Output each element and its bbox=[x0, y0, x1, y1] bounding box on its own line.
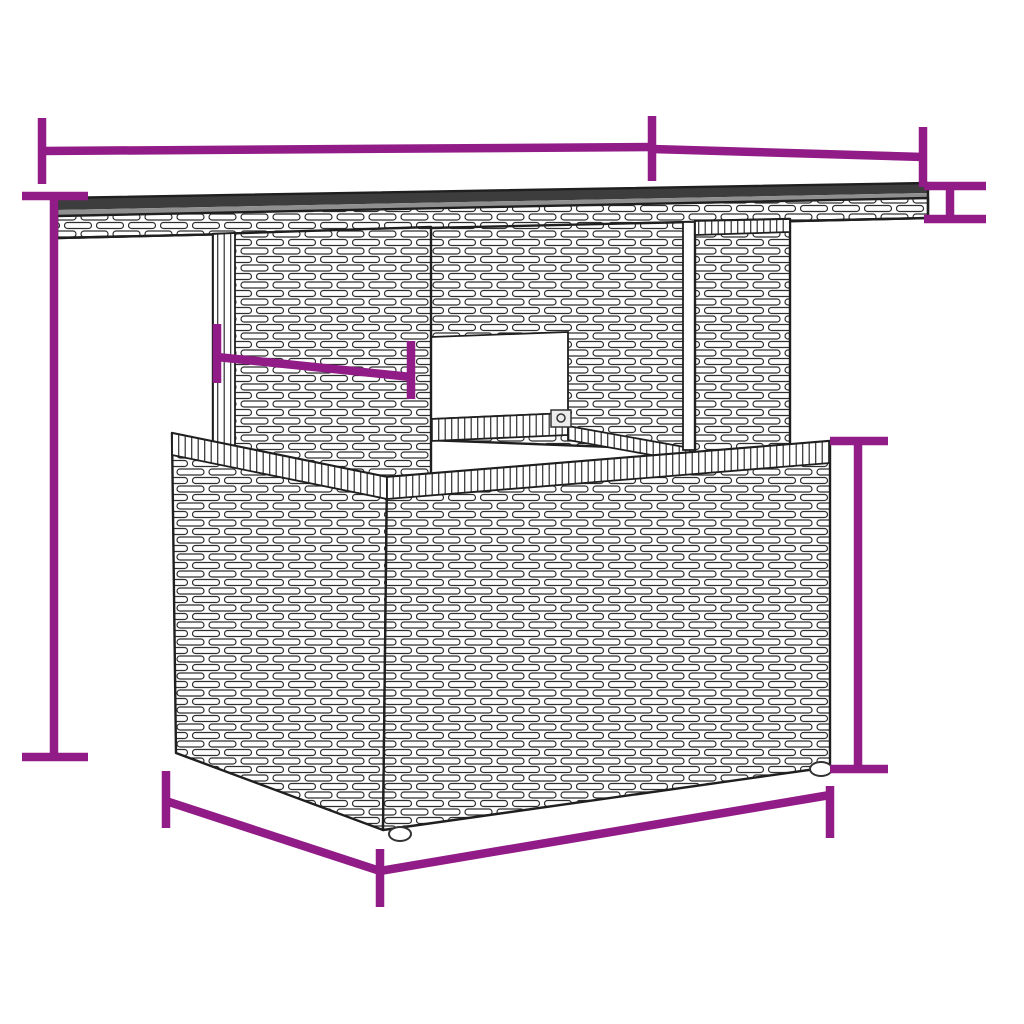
product-dimension-image: 100 cm( 39.3″ ) 55 cm( 21.7″ ) 4 cm( 1.6… bbox=[0, 0, 1024, 1024]
dim-label-base-height: 42 cm( 16.5″ ) bbox=[881, 498, 928, 731]
dim-tabletop-thickness: 4 cm( 1.6″ ) bbox=[924, 128, 1022, 320]
dim-label-tabletop-depth: 55 cm( 21.7″ ) bbox=[682, 80, 908, 139]
dim-tabletop-width: 100 cm( 39.3″ ) bbox=[42, 76, 652, 184]
pedestal-window-sill-roll bbox=[431, 413, 568, 441]
pedestal-right-panel bbox=[695, 219, 790, 455]
base-foot-left bbox=[389, 827, 411, 841]
dim-label-tabletop-width: 100 cm( 39.3″ ) bbox=[254, 76, 513, 132]
pedestal-right-panel-top-roll bbox=[695, 219, 790, 235]
dim-label-tabletop-thickness: 4 cm( 1.6″ ) bbox=[975, 128, 1022, 320]
corner-bracket bbox=[551, 410, 571, 427]
pedestal-window bbox=[431, 332, 568, 419]
dim-tabletop-depth: 55 cm( 21.7″ ) bbox=[652, 80, 923, 187]
base-front-face bbox=[383, 441, 830, 830]
dim-label-base-depth: 55 cm( 21.7″ ) bbox=[145, 849, 374, 963]
dim-total-height: 73 cm( 28.7″ ) bbox=[11, 196, 89, 757]
dim-line bbox=[42, 147, 652, 151]
dim-base-height: 42 cm( 16.5″ ) bbox=[830, 441, 928, 769]
base-box bbox=[172, 433, 832, 841]
table-illustration bbox=[57, 183, 928, 841]
dim-label-base-width: 68 cm( 26.7″ ) bbox=[513, 846, 743, 931]
pedestal-gap-strip bbox=[683, 222, 695, 450]
base-foot-right bbox=[810, 762, 832, 776]
dim-line bbox=[652, 149, 923, 157]
table-line-drawing: 100 cm( 39.3″ ) 55 cm( 21.7″ ) 4 cm( 1.6… bbox=[0, 0, 1024, 1024]
